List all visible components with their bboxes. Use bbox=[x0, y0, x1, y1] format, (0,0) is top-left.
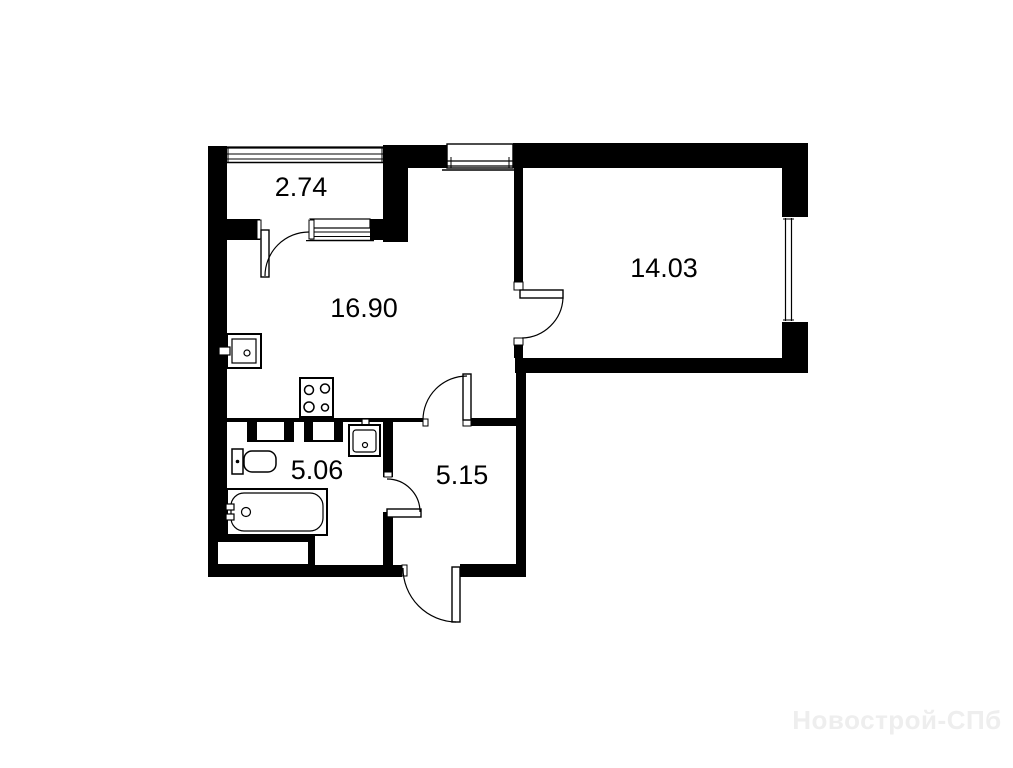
living-hallway-door bbox=[423, 374, 471, 427]
door-swing-arc bbox=[423, 376, 467, 420]
vent-duct-1-wall-l bbox=[248, 421, 257, 441]
balcony-door bbox=[257, 219, 314, 277]
wall-bedroom-bottom bbox=[515, 358, 808, 373]
door-swing-arc bbox=[522, 298, 563, 338]
burner bbox=[322, 404, 329, 411]
bathtub bbox=[226, 489, 327, 535]
kitchen-window bbox=[442, 144, 517, 170]
wall-bottom-right bbox=[460, 564, 526, 577]
vent-duct-2-wall-l bbox=[305, 421, 313, 441]
vent-duct bbox=[248, 421, 342, 441]
entrance-door bbox=[402, 564, 460, 622]
floor-plan-image: 2.74 16.90 14.03 5.06 5.15 Новострой-СПб bbox=[0, 0, 1013, 768]
bathroom-sink bbox=[349, 419, 380, 456]
wall-balcony-bottom-left bbox=[208, 219, 260, 240]
faucet bbox=[226, 514, 234, 520]
room-label-bathroom: 5.06 bbox=[291, 455, 344, 485]
watermark-text: Новострой-СПб bbox=[792, 705, 1001, 735]
bedroom-window bbox=[782, 217, 808, 322]
room-label-balcony: 2.74 bbox=[275, 172, 328, 202]
wall-bedroom-left-upper bbox=[514, 168, 523, 290]
room-label-bedroom: 14.03 bbox=[630, 253, 698, 283]
room-label-living-kitchen: 16.90 bbox=[330, 293, 398, 323]
floor-plan-svg: 2.74 16.90 14.03 5.06 5.15 Новострой-СПб bbox=[0, 0, 1013, 768]
faucet bbox=[219, 347, 230, 355]
wall-right-upper bbox=[782, 143, 808, 219]
wall-left bbox=[208, 146, 227, 577]
burner bbox=[321, 384, 330, 393]
bedroom-door bbox=[514, 282, 563, 345]
toilet bbox=[232, 449, 276, 474]
wall-balcony-bottom-right bbox=[370, 219, 408, 240]
burner bbox=[305, 386, 314, 395]
vent-duct-2-wall-r bbox=[334, 421, 342, 441]
door-leaf bbox=[520, 290, 563, 298]
balcony-room-window bbox=[306, 219, 374, 241]
faucet bbox=[226, 504, 234, 510]
door-leaf bbox=[463, 374, 471, 420]
wall-bath-hall-lower bbox=[383, 512, 393, 567]
drain bbox=[242, 508, 251, 517]
balcony-window bbox=[208, 146, 384, 163]
wall-hallway-right bbox=[516, 358, 526, 577]
toilet-bowl bbox=[244, 451, 276, 472]
wall-bath-hall-upper bbox=[383, 419, 393, 477]
wall-kitchen-hall bbox=[466, 418, 516, 426]
door-leaf bbox=[452, 567, 460, 622]
fixtures bbox=[219, 334, 380, 535]
wall-top-b bbox=[513, 143, 808, 168]
stove bbox=[300, 378, 333, 417]
bathroom-door bbox=[383, 472, 421, 517]
door-leaf bbox=[387, 509, 421, 517]
vent-duct-1-wall-r bbox=[284, 421, 293, 441]
wall-niche bbox=[218, 542, 308, 564]
burner bbox=[304, 402, 314, 412]
room-label-hallway: 5.15 bbox=[436, 460, 489, 490]
